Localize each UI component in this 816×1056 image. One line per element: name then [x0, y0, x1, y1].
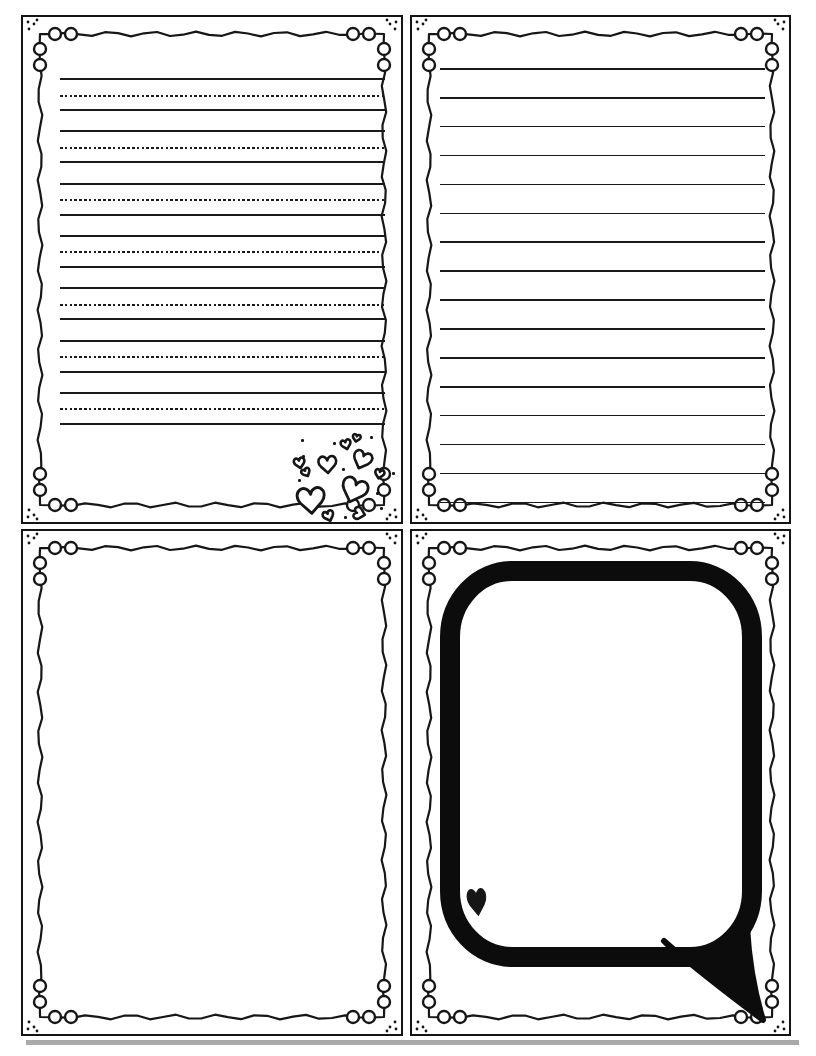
writing-line-bottom — [60, 266, 385, 268]
ruled-line — [440, 270, 765, 272]
ruled-line — [440, 213, 765, 215]
speech-bubble-content-layer — [412, 531, 789, 1034]
writing-line-dotted-middle — [60, 408, 385, 410]
frame-corner-dot — [27, 1028, 30, 1031]
ruled-line — [440, 126, 765, 128]
frame-corner-circle — [34, 557, 46, 569]
printable-page — [0, 0, 816, 1056]
heart-shape — [297, 487, 326, 514]
frame-corner-circle — [34, 980, 46, 992]
ruled-line — [440, 68, 765, 70]
frame-corner-circle — [378, 996, 390, 1008]
frame-corner-circle — [65, 1011, 77, 1023]
frame-corner-dot — [394, 1021, 397, 1024]
doodle-frame-line — [38, 546, 387, 1020]
ruled-line — [440, 97, 765, 99]
writing-line-top — [60, 235, 385, 237]
writing-line-bottom — [60, 109, 385, 111]
heart-shape — [466, 888, 487, 916]
doodle-dot — [380, 507, 383, 510]
frame-corner-circle — [378, 980, 390, 992]
doodle-frame — [23, 531, 401, 1034]
doodle-dot — [301, 439, 304, 442]
writing-line-top — [60, 392, 385, 394]
writing-line-top — [60, 78, 385, 80]
writing-line-bottom — [60, 161, 385, 163]
frame-corner-circle — [34, 996, 46, 1008]
writing-line-dotted-middle — [60, 199, 385, 201]
writing-line-dotted-middle — [60, 147, 385, 149]
frame-corner-circle — [347, 1011, 359, 1023]
writing-line-top — [60, 340, 385, 342]
ruled-line — [440, 299, 765, 301]
heart-shape — [338, 475, 370, 506]
doodle-dot — [333, 442, 336, 445]
frame-corner-circle — [363, 1011, 375, 1023]
doodle-dot — [298, 479, 301, 482]
solid-heart-icon — [462, 883, 492, 922]
heart-shape — [351, 434, 360, 443]
panel-top-left-handwriting — [21, 15, 403, 524]
writing-line-dotted-middle — [60, 251, 385, 253]
ruled-line — [440, 386, 765, 388]
page-shadow — [26, 1040, 799, 1045]
frame-corner-circle — [378, 573, 390, 585]
frame-corner-dot — [27, 535, 30, 538]
frame-corner-circle — [49, 542, 61, 554]
frame-corner-circle — [363, 542, 375, 554]
frame-corner-circle — [347, 542, 359, 554]
frame-corner-dot — [28, 1021, 31, 1024]
doodle-dot — [342, 468, 345, 471]
ruled-line — [440, 502, 765, 504]
frame-corner-dot — [386, 1030, 389, 1033]
writing-line-dotted-middle — [60, 304, 385, 306]
frame-corner-dot — [394, 542, 397, 545]
frame-corner-dot — [386, 533, 389, 536]
doodle-dot — [344, 516, 347, 519]
heart-shape — [352, 506, 366, 521]
ruled-line — [440, 357, 765, 359]
outline-heart-icon — [314, 452, 341, 477]
heart-shape — [373, 469, 384, 480]
ruled-line — [440, 241, 765, 243]
ruled-line — [440, 328, 765, 330]
doodle-dot — [302, 455, 305, 458]
frame-corner-dot — [36, 1030, 39, 1033]
doodle-dot — [376, 492, 379, 495]
writing-line-bottom — [60, 214, 385, 216]
frame-corner-dot — [36, 533, 39, 536]
heart-shape — [318, 455, 337, 473]
panel-bottom-left-blank — [21, 529, 403, 1036]
frame-corner-dot — [33, 1026, 36, 1029]
ruled-lines-layer — [412, 17, 789, 522]
ruled-line — [440, 184, 765, 186]
panel-bottom-right-speech-bubble — [410, 529, 791, 1036]
frame-corner-circle — [65, 542, 77, 554]
outline-heart-icon — [350, 432, 363, 444]
frame-corner-dot — [33, 537, 36, 540]
handwriting-lines-layer — [23, 17, 401, 522]
writing-line-bottom — [60, 423, 385, 425]
doodle-dot — [370, 436, 373, 439]
frame-corner-dot — [28, 542, 31, 545]
writing-line-top — [60, 183, 385, 185]
frame-corner-dot — [389, 1026, 392, 1029]
ruled-line — [440, 473, 765, 475]
writing-line-dotted-middle — [60, 356, 385, 358]
heart-shape — [321, 509, 335, 522]
frame-corner-circle — [378, 557, 390, 569]
heart-shape — [300, 467, 311, 478]
writing-line-bottom — [60, 371, 385, 373]
frame-corner-dot — [395, 1028, 398, 1031]
frame-corner-dot — [389, 537, 392, 540]
heart-shape — [350, 449, 374, 472]
ruled-line — [440, 155, 765, 157]
frame-corner-circle — [34, 573, 46, 585]
writing-line-top — [60, 287, 385, 289]
writing-line-bottom — [60, 318, 385, 320]
ruled-line — [440, 415, 765, 417]
frame-corner-circle — [49, 1011, 61, 1023]
writing-line-top — [60, 130, 385, 132]
ruled-line — [440, 444, 765, 446]
frame-corner-dot — [395, 535, 398, 538]
doodle-dot — [392, 472, 395, 475]
panel-top-right-ruled — [410, 15, 791, 524]
writing-line-dotted-middle — [60, 95, 385, 97]
